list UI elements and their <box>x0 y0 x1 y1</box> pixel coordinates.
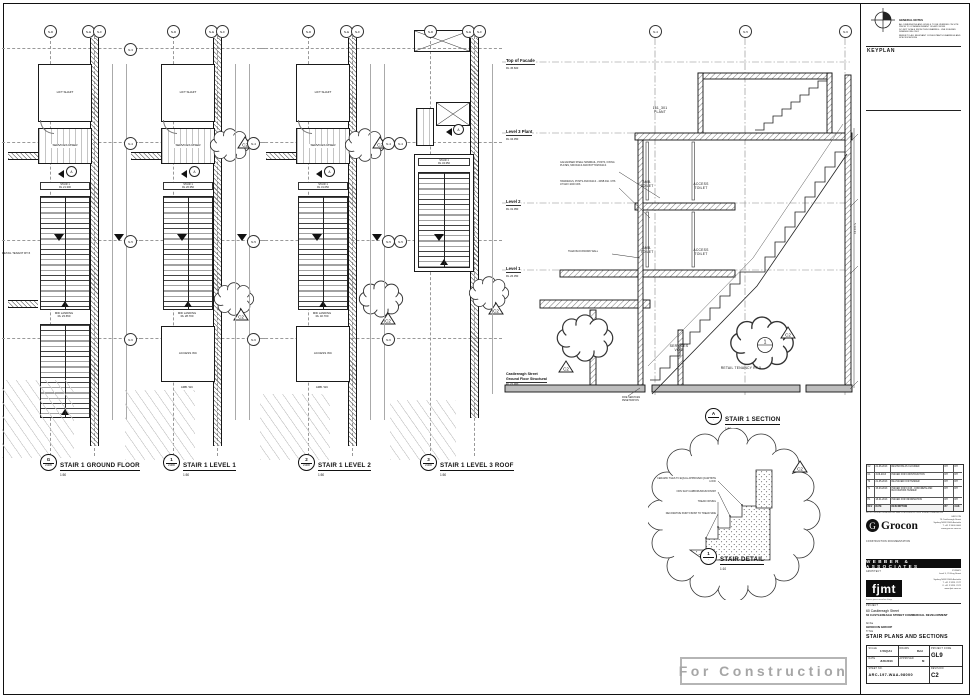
revision-value: C2 <box>931 673 939 679</box>
section-cut-icon <box>372 234 382 241</box>
mid-landing-label: MID LANDINGRL 23.650 <box>40 312 88 319</box>
grid-bubble: N-F <box>473 25 486 38</box>
access-toilet-label: ACCESSTOILET <box>686 182 716 191</box>
grocon-logo-icon: G <box>866 519 879 532</box>
approved-label: APPROVED <box>900 658 914 660</box>
posts-note: HANDRAILS, POSTS AND RAILS - 40NB DIA. C… <box>560 180 618 186</box>
section-arrow-icon <box>446 128 452 136</box>
mid-landing-label: MID LANDINGRL 32.700 <box>298 312 346 319</box>
architect-firm-line: francis-jones morehen thorp <box>866 599 961 601</box>
mid-landing-label: MID LANDINGRL 28.700 <box>163 312 211 319</box>
level-label: Top of FacadeRL 45.600 <box>506 49 535 70</box>
sheet-no-value: ARC-197-WAA-98000 <box>869 673 914 677</box>
general-note: REFER TO ALL RELEVANT CONSULTANTS DRAWIN… <box>899 35 961 39</box>
plan-level-2: N-D N-E N-F N-4 N-5 N-6 LIFT SHAFT SERVI… <box>268 24 400 474</box>
section-cut-icon <box>434 234 444 241</box>
stair-label: STAIR 1RL 31.050 <box>298 182 348 190</box>
wall <box>266 152 296 160</box>
detail-callout: CERAMIC TILES TO EQUAL APPROVED QUARTZIT… <box>656 477 716 483</box>
architect-address: Sydney NSW 2000 AustraliaT +61 2 9251 70… <box>904 579 961 591</box>
scale-value: 1:50@A1 <box>880 649 892 653</box>
revision-triangle: C2 <box>792 460 808 473</box>
plan-title-marker: 221006 <box>298 454 315 471</box>
sheet-no-label: SHEET NO. <box>869 668 883 670</box>
grid-bubble: N-4 <box>124 137 137 150</box>
grid-bubble: N-6 <box>382 333 395 346</box>
architect-role-label: ARCHITECT <box>866 571 881 573</box>
stair-flight <box>163 196 213 310</box>
services-riser-room: SERVICES RISER <box>38 128 92 164</box>
architectural-drawing-sheet: N-D N-E N-F N-3 N-4 N-5 N-6 LIFT SHAFT S… <box>0 0 973 698</box>
consultant-address: SYDNEYLevel 5, 70 King Street <box>900 570 961 576</box>
grid-bubble: N-F <box>216 25 229 38</box>
detail-callout: DECORATIVE PAINT FINISH TO TREAD SIDE <box>656 512 716 515</box>
amb-toilet-label: AMB.TOILET <box>634 180 660 189</box>
section-marker: A <box>453 124 464 135</box>
general-note: DO NOT SCALE FROM THIS DRAWING - USE FIG… <box>899 29 961 33</box>
svg-text:C2: C2 <box>493 309 499 314</box>
handrail-note: GALVANISED STEEL HANDRAIL, POSTS, FIXING… <box>560 161 618 167</box>
stair-label: STAIR 1RL 21.300 <box>40 182 90 190</box>
services-riser-room <box>416 108 434 146</box>
titleblock-divider <box>860 3 861 694</box>
stair-label: STAIR 1RL 34.350 <box>418 158 470 166</box>
north-arrow-icon <box>871 8 895 32</box>
services-void-label: SERVICESVOID <box>664 344 694 353</box>
access-wc-room: ACCESS WC <box>161 326 215 382</box>
scale-label: SCALE <box>869 648 878 650</box>
grid-bubble: N-4 <box>649 25 662 38</box>
detail-title-marker: 1- <box>700 548 717 565</box>
access-wc-room: ACCESS WC <box>296 326 350 382</box>
section-arrow-icon <box>58 170 64 178</box>
section-title-marker: A- <box>705 408 722 425</box>
date-value: JUN 2013 <box>880 659 893 663</box>
section-cut-icon <box>177 234 187 241</box>
plant-room-label: 161_301PLANT <box>640 106 680 115</box>
wall <box>8 152 38 160</box>
plan-title-marker: 321006 <box>420 454 437 471</box>
lift-shaft-room: LIFT SHAFT <box>38 64 92 122</box>
plan-ground-floor: N-D N-E N-F N-3 N-4 N-5 N-6 LIFT SHAFT S… <box>10 24 142 474</box>
client-address: GROCON75 Castlereagh Street Sydney NSW 2… <box>902 516 961 531</box>
lift-shaft-room: LIFT SHAFT <box>161 64 215 122</box>
grid-bubble: N-6 <box>247 333 260 346</box>
grid-bubble: N-D <box>424 25 437 38</box>
detail-callout: NON SLIP CARBORUNDUM FINISH <box>656 490 716 493</box>
for-construction-stamp: For Construction <box>680 657 847 685</box>
svg-text:1: 1 <box>764 340 767 346</box>
stair-flight <box>40 196 90 310</box>
general-notes: GENERAL NOTES ALL DIMENSIONS AND LEVELS … <box>899 18 961 39</box>
section-marker: A <box>66 166 77 177</box>
fjmt-logo: fjmt <box>866 580 902 597</box>
grid-bubble: N-5 <box>394 235 407 248</box>
section-marker: A <box>324 166 335 177</box>
grid-bubble: N-6 <box>839 25 852 38</box>
level-label: Level 1RL 26.350 <box>506 257 521 278</box>
level-label: Level 2RL 31.050 <box>506 190 521 211</box>
stair-label: STAIR 1RL 26.350 <box>163 182 213 190</box>
fire-note: FIRE SERVICES PENETRATION <box>622 396 656 402</box>
grid-bubble: N-5 <box>739 25 752 38</box>
project-line4: GROCON GROUP <box>866 625 892 629</box>
revision-triangle: C2 <box>780 326 796 339</box>
stair-flight <box>298 196 348 310</box>
retail-tenant-label: RETAIL TENANT RT-5 <box>2 252 34 255</box>
revision-triangle: C2 <box>558 360 574 373</box>
webber-banner: WEBBER & ASSOCIATES <box>866 559 961 568</box>
section-drawing: 1 <box>500 28 860 428</box>
grid-bubble: N-5 <box>247 235 260 248</box>
project-line1: 60 Castlereagh Street <box>866 609 899 613</box>
access-toilet-label: ACCESSTOILET <box>686 248 716 257</box>
level-label: Level 3 PlantRL 34.350 <box>506 120 532 141</box>
plan-title-marker: G21005 <box>40 454 57 471</box>
amb-toilet-label: AMB.TOILET <box>634 246 660 255</box>
title-label: TITLE <box>866 631 873 633</box>
general-note: ALL DIMENSIONS AND LEVELS TO BE VERIFIED… <box>899 24 961 28</box>
construction-doc-label: CONSTRUCTION DOCUMENTATION <box>866 541 910 543</box>
approved-value: M <box>922 659 924 663</box>
project-line2: 60 CASTLEREAGH STREET COMMERCIAL DEVELOP… <box>866 614 961 618</box>
detail-callout: TREAD NOSING <box>656 500 716 503</box>
drawn-value: RvH <box>917 649 923 653</box>
amb-wc-label: AMB. WC <box>161 386 213 389</box>
general-notes-title: GENERAL NOTES <box>899 18 961 22</box>
grid-bubble: N-5 <box>124 235 137 248</box>
svg-text:C2: C2 <box>797 467 803 472</box>
project-code-label: PROJECT CODE <box>931 648 951 650</box>
section-marker: A <box>189 166 200 177</box>
stair-flight <box>418 172 470 268</box>
date-label: DATE <box>869 658 876 660</box>
retail-tenancy-label: RETAIL TENANCY RT-5 <box>706 366 776 370</box>
svg-text:C2: C2 <box>563 367 569 372</box>
drawn-label: DRAWN <box>900 648 910 650</box>
wall <box>8 300 38 308</box>
plan-level-1: N-D N-E N-F N-4 N-5 N-6 LIFT SHAFT SERVI… <box>133 24 265 474</box>
grid-bubble: N-D <box>302 25 315 38</box>
revision-note: NOTE: FIGURED DIMENSIONS TAKE PRECEDENCE… <box>866 512 961 514</box>
grid-bubble: N-4 <box>394 137 407 150</box>
blockwork-note: TILED BLOCKWORK WALL <box>568 250 612 253</box>
meta-table: SCALE 1:50@A1 DRAWN RvH DATE JUN 2013 AP… <box>866 645 963 684</box>
drawing-title: STAIR PLANS AND SECTIONS <box>866 634 948 640</box>
project-label: PROJECT <box>866 605 878 607</box>
section-arrow-icon <box>181 170 187 178</box>
stair-detail: CERAMIC TILES TO EQUAL APPROVED QUARTZIT… <box>648 428 828 600</box>
wall <box>131 152 161 160</box>
grid-bubble: N-F <box>351 25 364 38</box>
section-cut-icon <box>54 234 64 241</box>
stair-section: 1 N-4 N-5 N-6 Top of FacadeRL 45.600 Lev… <box>500 28 860 428</box>
ground-level-label: Castlereagh Street Ground Floor Structur… <box>506 372 547 386</box>
grid-bubble: N-F <box>93 25 106 38</box>
revision-table: C221-06-2013REVISIONS AS CLOUDEDDHDH C13… <box>866 464 964 512</box>
svg-text:C2: C2 <box>238 315 244 320</box>
lift-shaft-room: LIFT SHAFT <box>296 64 350 122</box>
grid-bubble: N-3 <box>124 43 137 56</box>
section-cut-icon <box>114 234 124 241</box>
section-arrow-icon <box>316 170 322 178</box>
grid-bubble: N-D <box>44 25 57 38</box>
grid-bubble: N-D <box>167 25 180 38</box>
roof-plant-box <box>436 102 470 126</box>
plan-title-marker: 121006 <box>163 454 180 471</box>
project-code-value: GL9 <box>931 653 943 659</box>
section-cut-icon <box>312 234 322 241</box>
keyplan-label: KEYPLAN <box>867 48 895 54</box>
grid-bubble: N-4 <box>247 137 260 150</box>
vertical-dimension: 5,334.93 <box>853 223 857 234</box>
revision-label: REVISION <box>931 668 944 670</box>
section-cut-icon <box>237 234 247 241</box>
amb-wc-label: AMB. WC <box>296 386 348 389</box>
grid-bubble: N-6 <box>124 333 137 346</box>
svg-text:C2: C2 <box>785 333 791 338</box>
